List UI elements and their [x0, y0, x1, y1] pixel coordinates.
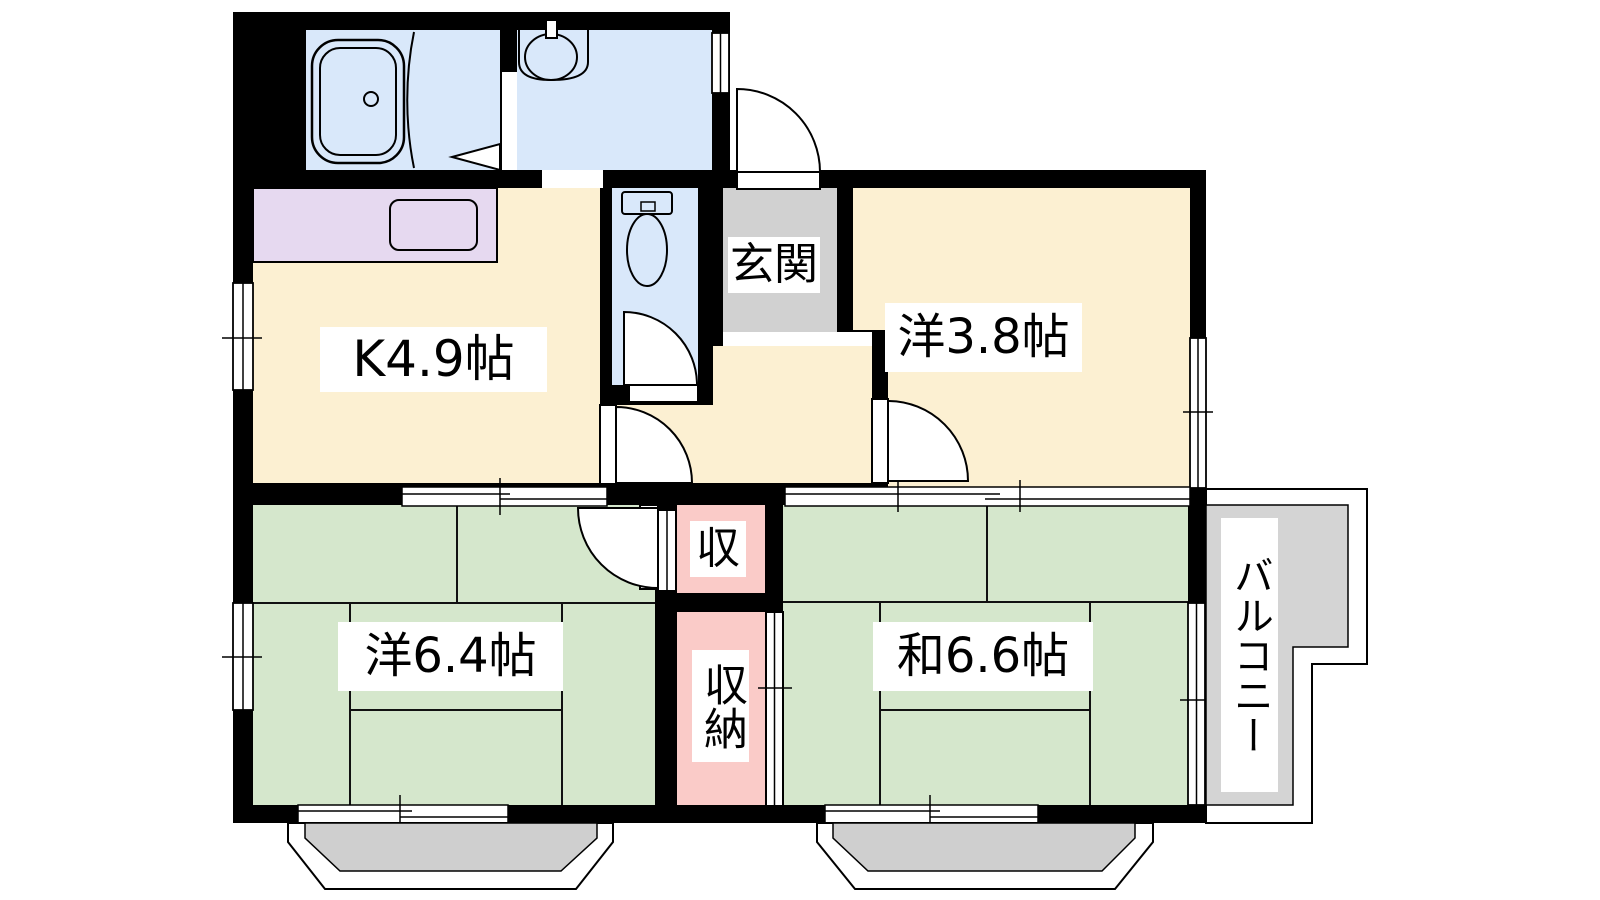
- bay-windows: [288, 823, 1153, 889]
- window-washroom: [712, 33, 729, 93]
- kitchen-door-leaf: [600, 405, 616, 484]
- closet-door: [658, 510, 676, 591]
- label-closet: 収: [690, 521, 746, 577]
- hallway-floor-b: [713, 346, 872, 405]
- bay-window-western2-sill: [305, 823, 597, 871]
- label-western-room-1: 洋3.8帖: [885, 303, 1082, 372]
- entrance-door-leaf: [737, 172, 820, 189]
- western1-door-leaf: [872, 399, 888, 483]
- floor-plan-drawing: [0, 0, 1600, 900]
- opening-washroom: [542, 170, 603, 188]
- bay-window-japanese-sill: [833, 823, 1135, 871]
- label-storage: 収納: [692, 650, 749, 762]
- entrance-door-swing: [737, 89, 820, 172]
- label-japanese-room: 和6.6帖: [873, 622, 1093, 691]
- label-western-room-2: 洋6.4帖: [338, 622, 563, 691]
- floor-plan-canvas: K4.9帖 玄関 洋3.8帖 洋6.4帖 和6.6帖 収 収納 バルコニー: [0, 0, 1600, 900]
- toilet-door-leaf: [629, 385, 698, 402]
- label-entrance: 玄関: [728, 237, 820, 293]
- entrance-step: [723, 332, 872, 346]
- washroom-floor: [517, 30, 712, 170]
- label-balcony: バルコニー: [1221, 518, 1278, 792]
- kitchen-sink-icon: [390, 200, 477, 250]
- label-kitchen: K4.9帖: [320, 327, 547, 392]
